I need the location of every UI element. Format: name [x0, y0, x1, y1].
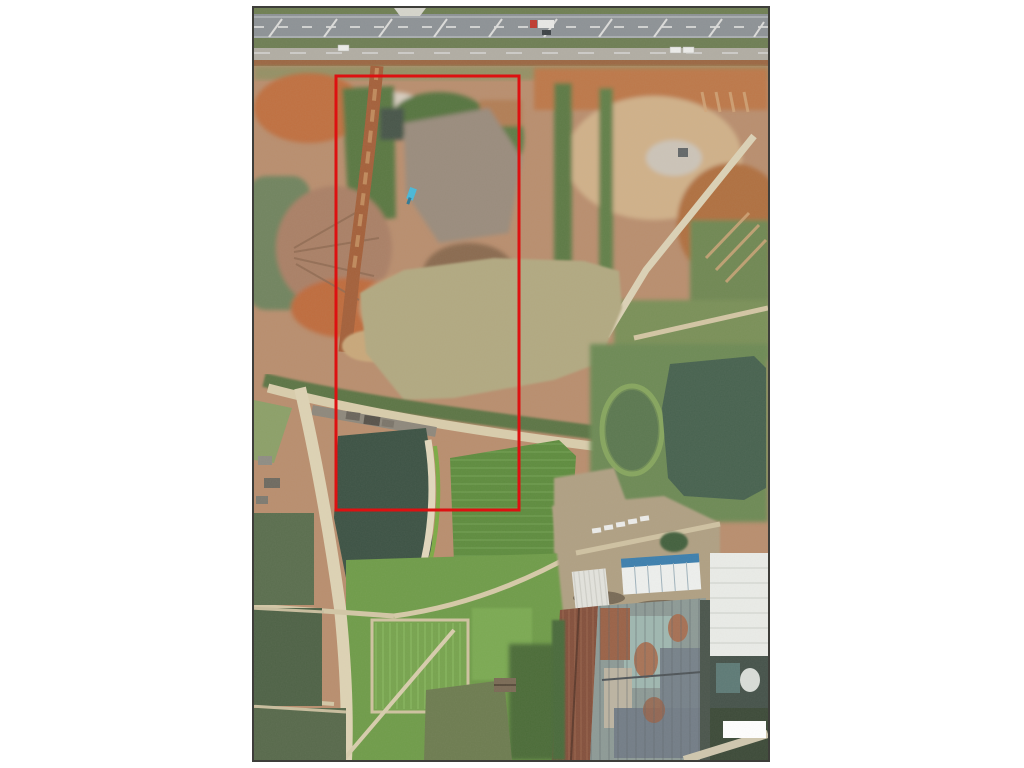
photo-frame — [252, 6, 770, 762]
page — [0, 0, 1024, 768]
aerial-photo — [254, 8, 768, 760]
grain-overlay — [254, 8, 768, 760]
